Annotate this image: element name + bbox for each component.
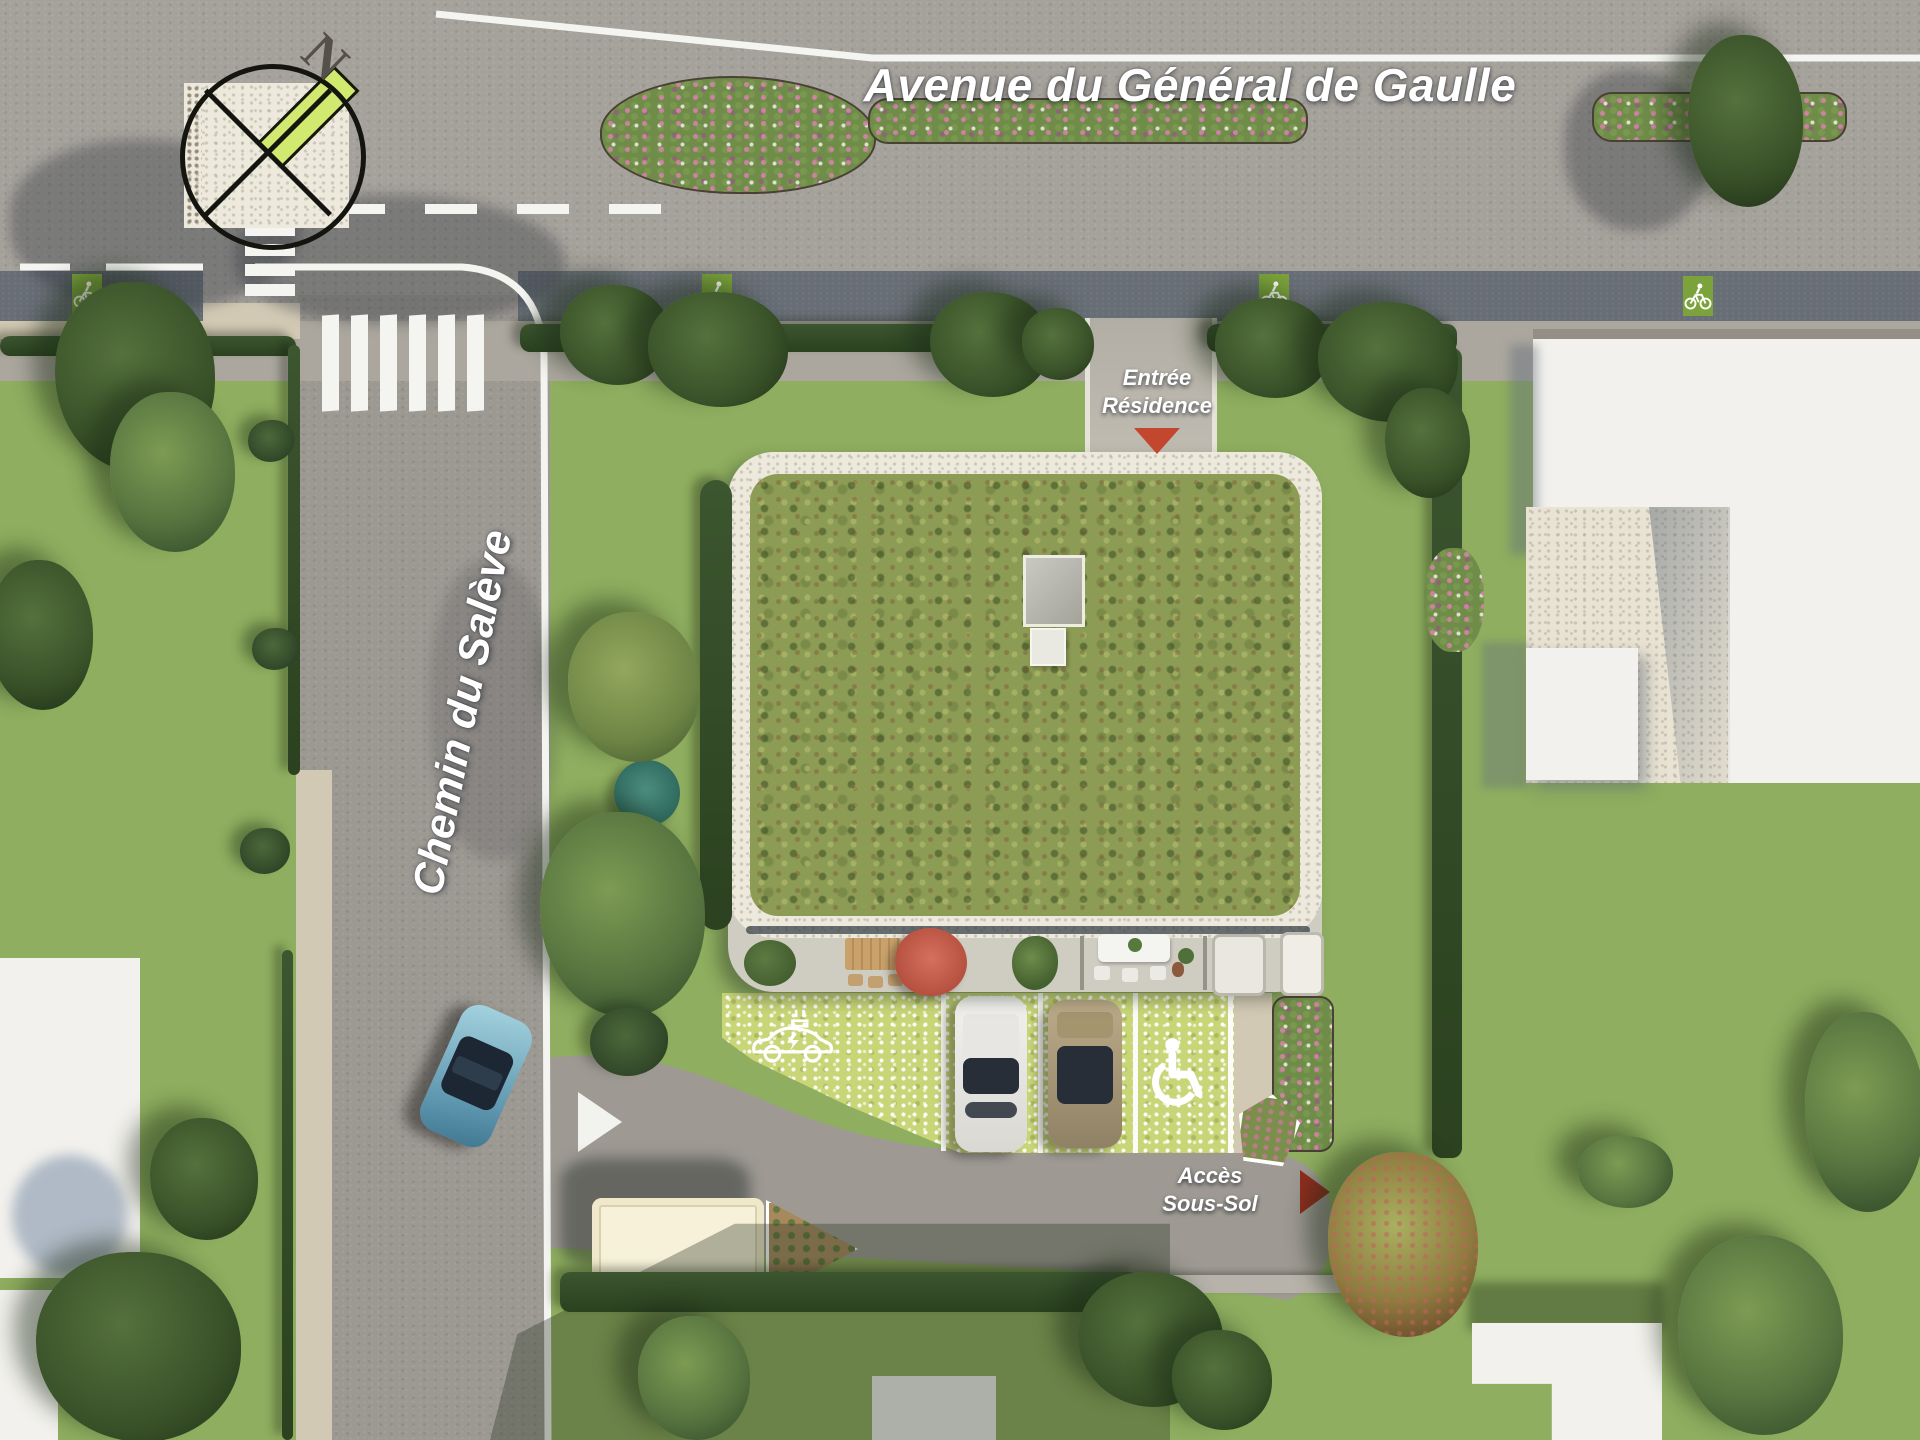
tree [1172,1330,1272,1430]
tree [568,612,700,762]
site-plan: N [0,0,1920,1440]
facade-glass-line [746,926,1310,934]
tree [36,1252,241,1440]
wheelchair-icon [1146,1036,1208,1110]
terrace-planter [744,940,796,986]
terrace-divider [1080,936,1084,990]
terrace-tree [1012,936,1058,990]
hedge [560,1272,1140,1312]
hedge [282,950,293,1440]
hedge [288,345,300,775]
terrace-chair [1150,966,1166,980]
rooftop-equipment [1023,555,1085,627]
table-plant [1128,938,1142,952]
terrace-divider [1203,936,1207,990]
parking-stall-line [941,993,946,1151]
tree [638,1316,750,1440]
neighbor-fence [1533,329,1920,339]
tree [1688,35,1803,207]
tree [648,292,788,407]
tree [1578,1136,1673,1208]
green-roof [750,474,1300,916]
terrace-chair [1094,966,1110,980]
building-shadow [1468,1282,1664,1330]
tree [110,392,235,552]
residence-entrance-arrow-icon [1134,428,1180,454]
building-side-bed [700,480,732,930]
neighbor-building-wing [1728,507,1920,783]
neighbor-garage-cube [1526,648,1638,780]
tree [150,1118,258,1240]
residence-entrance-label: Entrée Résidence [1077,364,1237,419]
ev-car-icon [745,1008,840,1072]
parking-stall-line [1228,993,1233,1153]
rooftop-hatch [1030,628,1066,666]
yield-arrow-icon [578,1092,622,1152]
avenue-street-label: Avenue du Général de Gaulle [810,58,1570,112]
terrace-sofa [1212,934,1266,996]
basement-access-label: Accès Sous-Sol [1130,1162,1290,1217]
patio-umbrella [895,928,967,996]
terrace-chair [868,976,883,988]
parking-stall-line [1038,993,1043,1153]
wood-table [845,938,901,970]
basement-access-arrow-icon [1300,1170,1330,1214]
building-shadow [1482,642,1528,788]
parking-stall-line [1133,993,1138,1153]
terrace-sofa [1280,932,1324,996]
bike-lane-icon [1683,276,1713,316]
tree [1385,388,1470,498]
flowering-hedge [1424,548,1484,652]
terrace-dog [1172,962,1184,977]
terrace-chair [848,974,863,986]
terrace-chair [1122,968,1138,982]
neighbor-building [1533,339,1920,507]
